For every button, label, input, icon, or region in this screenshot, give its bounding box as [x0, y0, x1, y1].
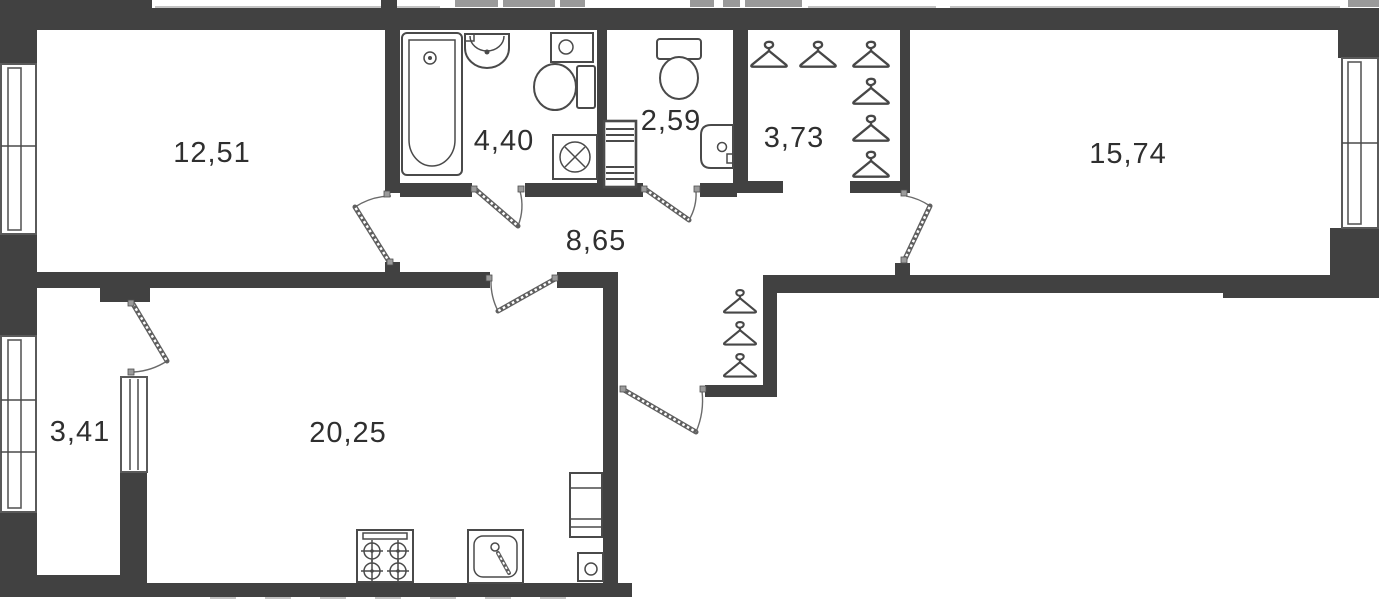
balcony-door-window-unit: [121, 377, 147, 472]
closet-hangers: [724, 290, 756, 377]
corner-sink-icon: [701, 125, 733, 168]
label-balcony: 3,41: [50, 416, 110, 448]
hanger-icon: [853, 152, 888, 177]
label-room-top-left: 12,51: [173, 137, 251, 169]
label-wardrobe: 3,73: [764, 122, 824, 154]
hanger-icon: [724, 354, 756, 377]
hanger-icon: [800, 42, 835, 67]
label-wc: 2,59: [641, 105, 701, 137]
door-kitchen: [486, 275, 558, 311]
washing-machine-icon: [553, 135, 597, 179]
floor-plan: 12,51 4,40 2,59 3,73 15,74 8,65 20,25 3,…: [0, 0, 1379, 600]
floor-plan-canvas: 12,51 4,40 2,59 3,73 15,74 8,65 20,25 3,…: [0, 0, 1379, 600]
hanger-icon: [853, 116, 888, 141]
boiler-icon: [578, 553, 603, 581]
label-kitchen-living: 20,25: [309, 417, 387, 449]
bathroom-sink-icon: [465, 34, 509, 68]
toilet-wc-icon: [657, 39, 701, 99]
label-bathroom: 4,40: [474, 125, 534, 157]
door-room-top-right: [901, 190, 930, 263]
door-balcony: [128, 300, 167, 375]
toilet-bathroom-icon: [534, 64, 595, 110]
door-room-top-left: [355, 191, 393, 265]
door-entrance: [620, 386, 706, 432]
door-bathroom: [471, 186, 524, 226]
door-wc: [641, 186, 700, 220]
hanger-icon: [724, 322, 756, 345]
window-room-top-right: [1342, 58, 1378, 228]
kitchen-sink-icon: [468, 530, 523, 583]
window-balcony: [1, 336, 36, 512]
bathtub-icon: [402, 33, 462, 175]
hanger-icon: [853, 79, 888, 104]
hanger-icon: [724, 290, 756, 313]
tall-cabinet-icon: [570, 473, 602, 537]
wardrobe-hangers: [751, 42, 888, 177]
label-hallway: 8,65: [566, 225, 626, 257]
hanger-icon: [751, 42, 786, 67]
stove-icon: [357, 530, 413, 582]
water-heater-icon: [551, 33, 593, 62]
vent-shaft: [604, 121, 636, 187]
hanger-icon: [853, 42, 888, 67]
window-room-top-left: [1, 64, 36, 234]
label-room-top-right: 15,74: [1089, 138, 1167, 170]
